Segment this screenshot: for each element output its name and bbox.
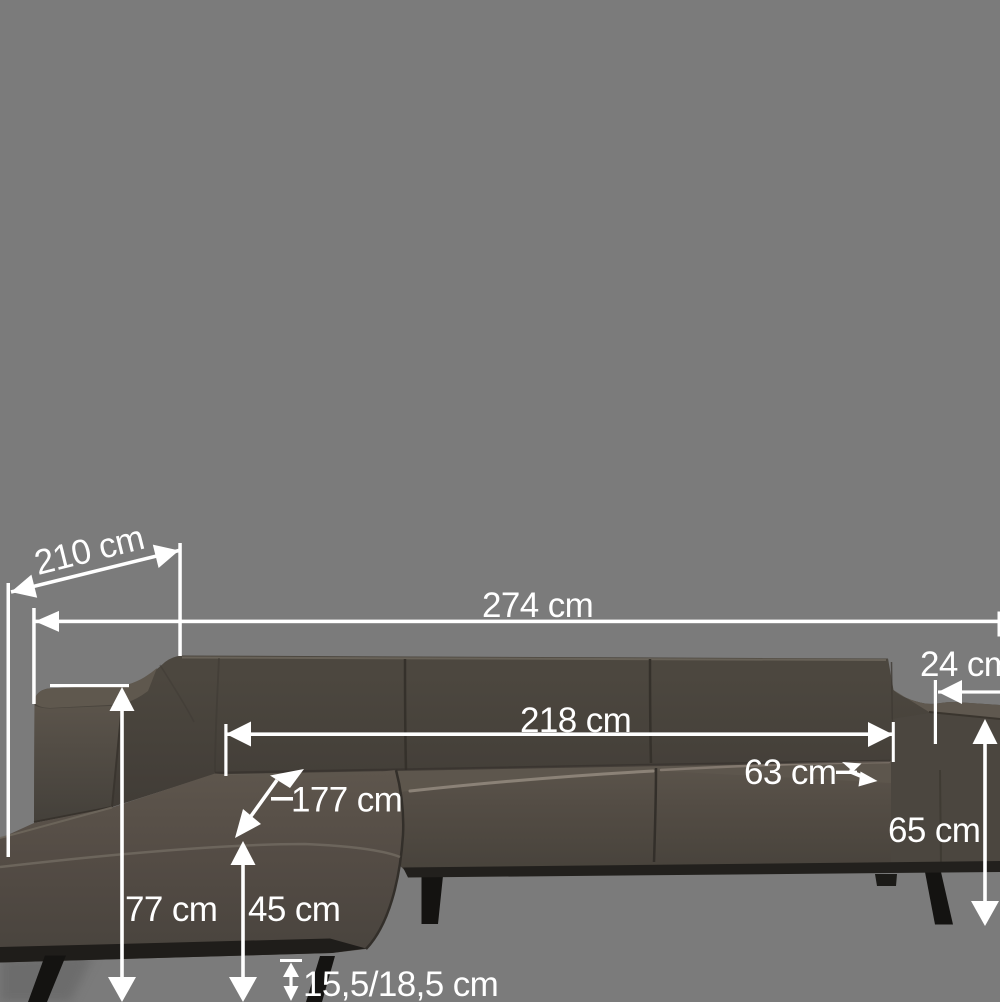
svg-text:177 cm: 177 cm (291, 781, 402, 820)
svg-text:63 cm: 63 cm (744, 753, 836, 792)
svg-text:274 cm: 274 cm (482, 586, 593, 625)
svg-text:218 cm: 218 cm (520, 701, 631, 740)
svg-text:45 cm: 45 cm (248, 890, 340, 929)
svg-text:24 cm: 24 cm (920, 645, 1000, 684)
svg-text:77 cm: 77 cm (125, 890, 217, 929)
svg-text:65 cm: 65 cm (888, 811, 980, 850)
svg-text:15,5/18,5 cm: 15,5/18,5 cm (303, 965, 498, 1002)
